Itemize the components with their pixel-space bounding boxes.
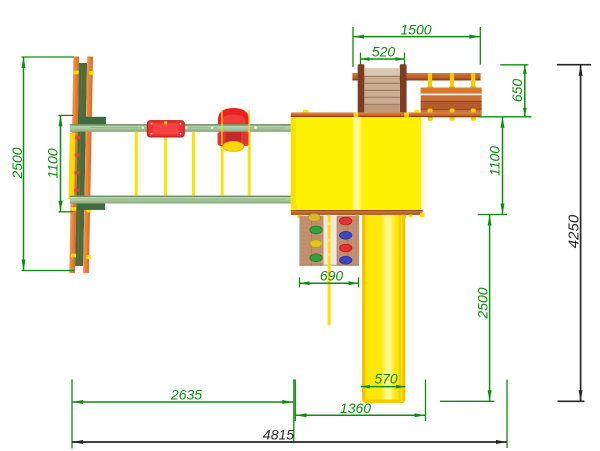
svg-text:2500: 2500: [9, 147, 25, 179]
svg-text:1100: 1100: [487, 146, 503, 176]
svg-text:570: 570: [374, 370, 398, 386]
svg-text:4815: 4815: [263, 427, 294, 443]
svg-text:1500: 1500: [400, 21, 431, 37]
svg-text:2635: 2635: [170, 386, 202, 402]
svg-text:650: 650: [509, 79, 525, 103]
svg-text:4250: 4250: [565, 214, 582, 248]
svg-text:520: 520: [372, 44, 396, 60]
svg-text:690: 690: [320, 267, 344, 283]
svg-text:1100: 1100: [45, 148, 61, 178]
svg-text:1360: 1360: [340, 400, 371, 416]
svg-text:2500: 2500: [475, 287, 491, 319]
